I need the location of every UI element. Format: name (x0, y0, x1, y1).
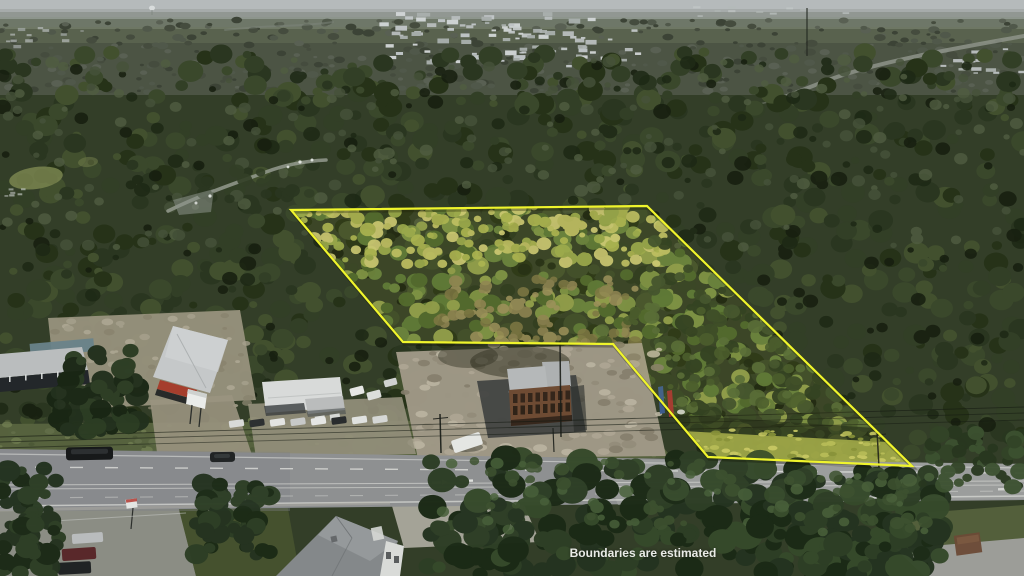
aerial-photo-frame: Boundaries are estimated (0, 0, 1024, 576)
aerial-photo-scene (0, 0, 1024, 576)
